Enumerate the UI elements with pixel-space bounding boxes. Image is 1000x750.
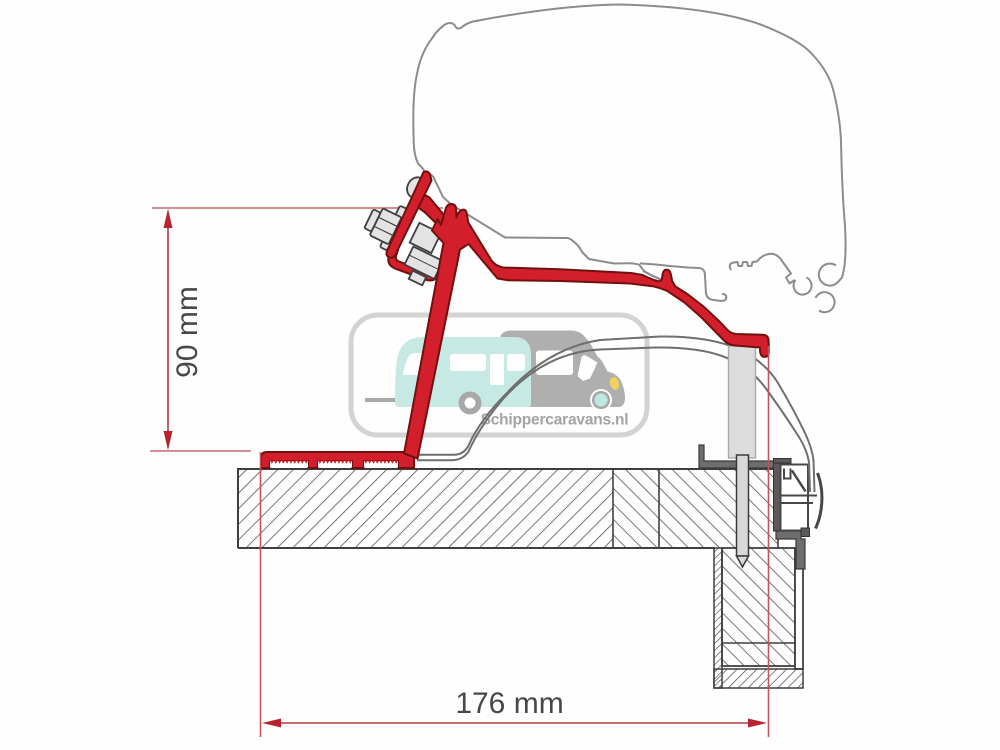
- svg-text:176 mm: 176 mm: [455, 687, 563, 720]
- svg-text:90 mm: 90 mm: [171, 286, 204, 378]
- svg-text:Schippercaravans.nl: Schippercaravans.nl: [481, 412, 629, 429]
